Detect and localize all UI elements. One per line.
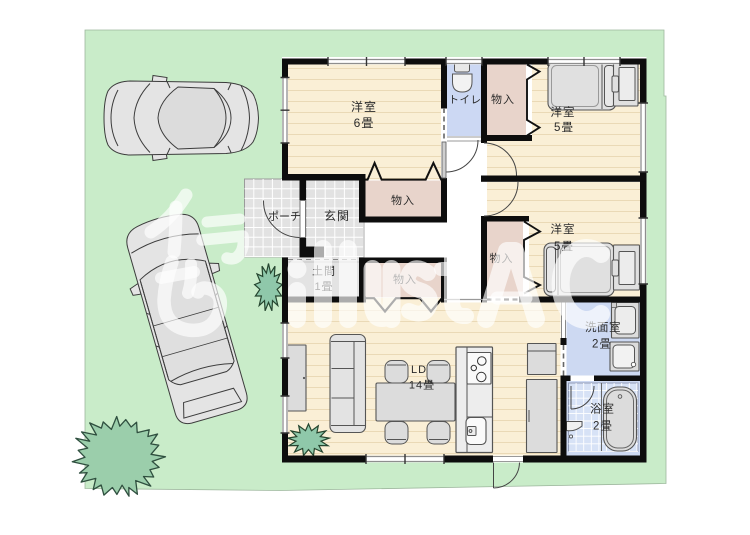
svg-text:洋室: 洋室: [351, 99, 377, 114]
svg-text:5畳: 5畳: [554, 121, 574, 134]
svg-text:LD: LD: [411, 364, 427, 376]
svg-text:物入: 物入: [491, 92, 515, 106]
svg-text:2畳: 2畳: [593, 420, 613, 433]
svg-text:トイレ: トイレ: [449, 94, 482, 106]
svg-text:6畳: 6畳: [354, 116, 375, 130]
svg-text:浴室: 浴室: [590, 402, 615, 416]
svg-text:14畳: 14畳: [409, 379, 435, 392]
svg-text:物入: 物入: [391, 193, 415, 207]
svg-text:洋室: 洋室: [551, 105, 576, 119]
svg-text:2畳: 2畳: [592, 338, 612, 351]
svg-text:玄関: 玄関: [324, 208, 350, 223]
svg-text:ポーチ: ポーチ: [268, 210, 301, 223]
svg-text:洋室: 洋室: [551, 222, 576, 236]
